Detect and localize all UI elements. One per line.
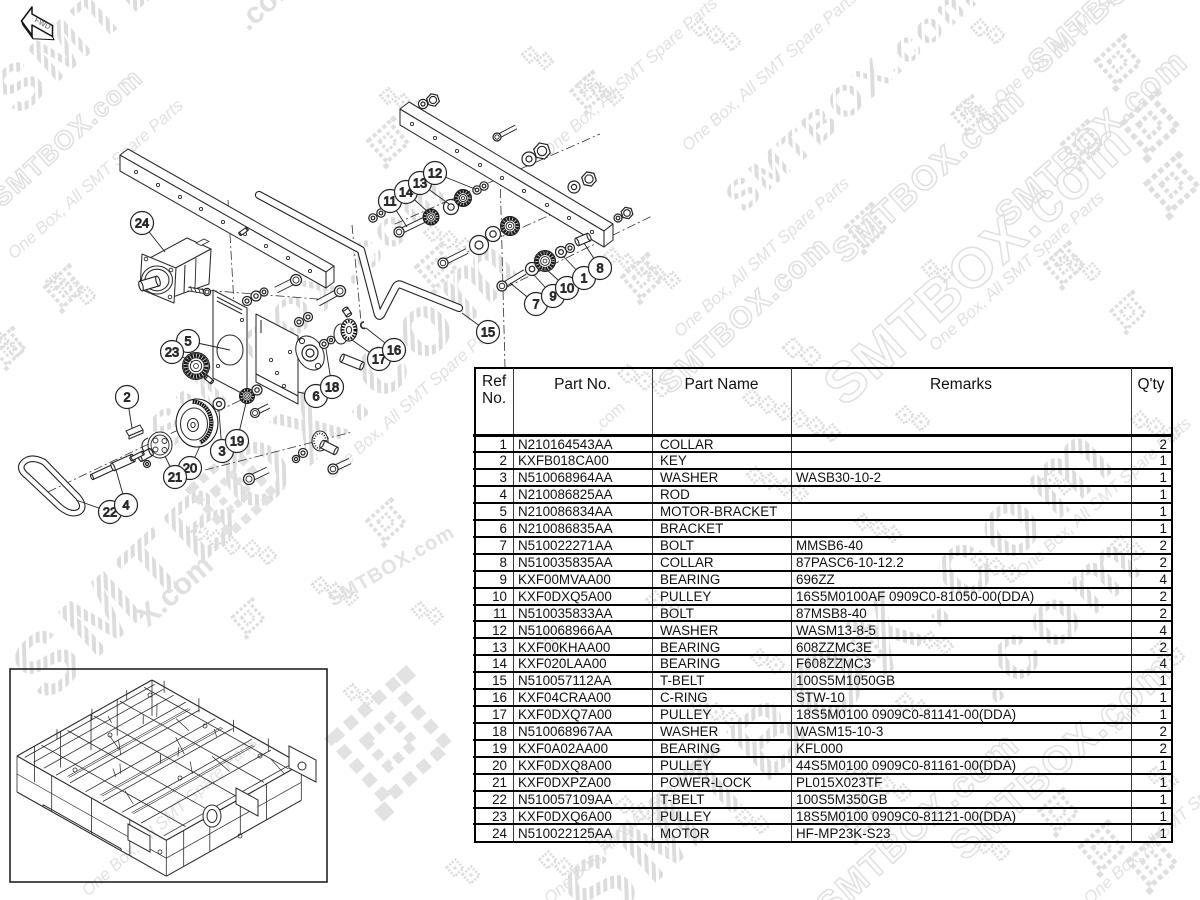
svg-text:23: 23	[165, 345, 179, 360]
svg-text:.com: .com	[231, 0, 305, 37]
svg-text:24: 24	[135, 216, 149, 231]
svg-text:SMTBOX.com: SMTBOX.com	[716, 0, 987, 222]
svg-text:10: 10	[560, 281, 574, 296]
svg-text:SMTBOX.com: SMTBOX.com	[0, 0, 389, 128]
svg-text:2: 2	[123, 390, 130, 405]
svg-text:3: 3	[218, 444, 225, 459]
svg-text:5: 5	[184, 334, 191, 349]
svg-text:1: 1	[580, 271, 587, 286]
svg-text:16: 16	[387, 343, 401, 358]
svg-text:4: 4	[122, 498, 129, 513]
svg-text:7: 7	[532, 297, 539, 312]
svg-text:6: 6	[312, 389, 319, 404]
svg-text:15: 15	[481, 325, 495, 340]
svg-text:8: 8	[596, 261, 603, 276]
svg-text:21: 21	[168, 470, 182, 485]
svg-text:18: 18	[325, 380, 339, 395]
svg-text:19: 19	[230, 434, 244, 449]
svg-text:12: 12	[428, 166, 442, 181]
